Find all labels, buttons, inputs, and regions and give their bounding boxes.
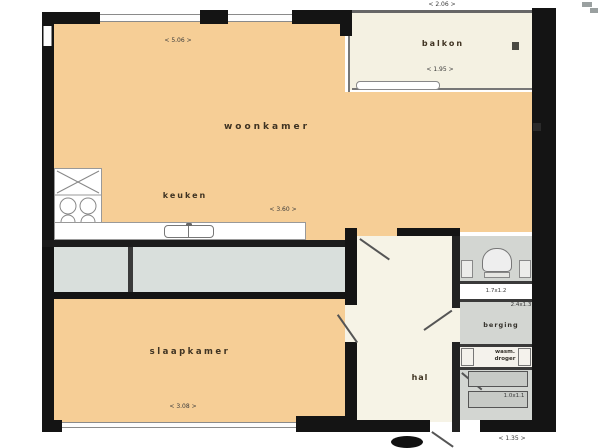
wall-kitchen-bottom xyxy=(42,240,345,247)
floorplan-canvas: woonkamer keuken slaapkamer balkon hal b… xyxy=(0,0,600,448)
kitchen-label: keuken xyxy=(163,191,207,200)
storage-label: berging xyxy=(483,321,518,329)
dryer-box xyxy=(518,348,531,366)
wall-balcony-left-stub xyxy=(340,10,352,36)
living-hall-doorway xyxy=(357,228,397,236)
washer-label: wasm. xyxy=(495,349,515,355)
kitchen-sink-icon xyxy=(164,225,214,238)
edge-artifact-2 xyxy=(590,8,598,13)
logo-mark xyxy=(391,436,423,448)
edge-artifact-1 xyxy=(582,2,592,7)
toilet-base xyxy=(484,272,510,278)
utility-cabinet-1 xyxy=(468,371,528,387)
toilet-icon xyxy=(482,248,512,272)
wall-top-b xyxy=(200,10,228,24)
wall-bottom-c xyxy=(345,420,430,432)
stove-burners-icon xyxy=(55,169,101,229)
sliding-door xyxy=(356,81,440,90)
storage-doorway xyxy=(452,308,460,342)
kitchen-dim: < 3.60 > xyxy=(269,206,296,213)
balcony-strip-area xyxy=(42,247,345,292)
radiator-vent-icon xyxy=(533,123,541,131)
wall-top-a xyxy=(42,12,100,24)
wall-right xyxy=(532,8,556,432)
fixture-box-left xyxy=(461,260,473,278)
window-top-2 xyxy=(228,14,292,22)
dryer-label: droger xyxy=(495,356,516,362)
sink-faucet xyxy=(186,223,192,226)
bedroom-dim: < 3.08 > xyxy=(169,403,196,410)
balcony-area xyxy=(350,12,532,90)
storage-divider-3 xyxy=(460,344,532,347)
hall-area xyxy=(357,236,452,422)
balcony-railing-left xyxy=(348,36,350,92)
utility-dim: 1.0x1.1 xyxy=(504,393,525,399)
fixture-box-right xyxy=(519,260,531,278)
storage-divider-4 xyxy=(460,367,532,370)
balcony-vent-icon xyxy=(512,42,519,50)
wall-bottom-a xyxy=(42,420,62,432)
wall-bottom-b xyxy=(296,416,345,432)
washing-machine-box xyxy=(461,348,474,366)
balcony-dim-outside: < 2.06 > xyxy=(428,1,455,8)
living-room-label: woonkamer xyxy=(224,122,310,132)
window-bottom xyxy=(62,422,296,428)
window-left xyxy=(43,26,52,46)
wall-left xyxy=(42,12,54,432)
bedroom-area xyxy=(54,298,345,422)
window-top-1 xyxy=(100,14,200,22)
living-room-area-right xyxy=(345,92,532,232)
balcony-railing-top xyxy=(352,10,532,13)
wall-strip-bottom xyxy=(42,292,345,299)
kitchen-block xyxy=(54,168,102,230)
wall-bottom-d xyxy=(480,420,556,432)
entrance-dim: < 1.35 > xyxy=(498,435,525,442)
niche-dim: 1.7x1.2 xyxy=(486,288,507,294)
storage-dim: 2.4x1.3 xyxy=(511,302,532,308)
balcony-dim-inside: < 1.95 > xyxy=(426,66,453,73)
front-door-leaf xyxy=(432,431,454,447)
balcony-strip-divider xyxy=(128,247,133,292)
bedroom-label: slaapkamer xyxy=(150,347,231,357)
storage-divider-1 xyxy=(460,281,532,284)
balcony-label: balkon xyxy=(422,39,464,48)
sink-divider xyxy=(188,226,189,237)
living-dim: < 5.06 > xyxy=(164,37,191,44)
hall-label: hal xyxy=(412,373,429,382)
